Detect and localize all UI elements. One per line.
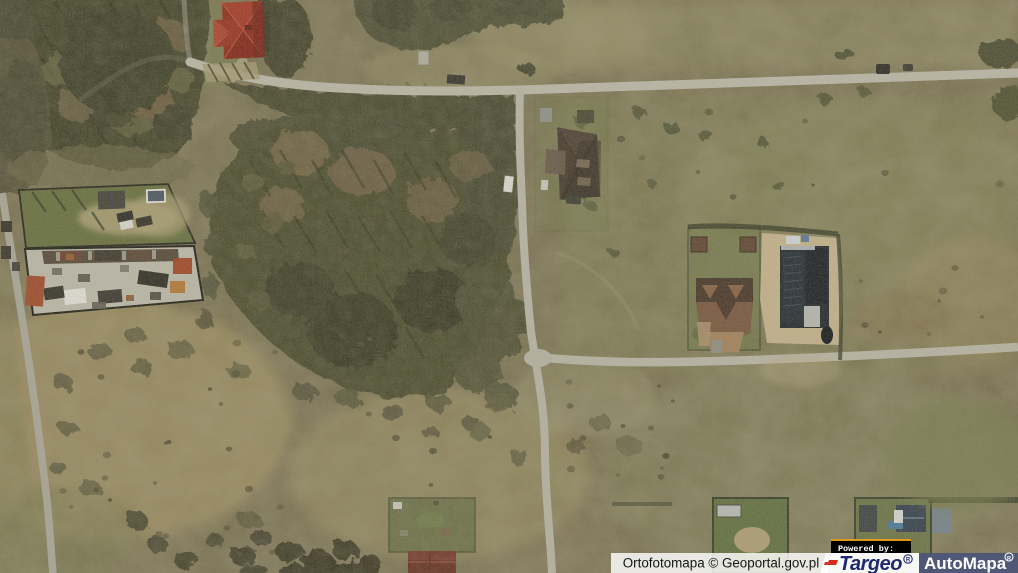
svg-text:Targeo: Targeo bbox=[839, 553, 902, 573]
svg-text:R: R bbox=[1007, 556, 1011, 562]
svg-text:AutoMapa: AutoMapa bbox=[924, 554, 1007, 573]
svg-text:R: R bbox=[906, 558, 911, 564]
svg-text:Ortofotomapa © Geoportal.gov.p: Ortofotomapa © Geoportal.gov.pl bbox=[623, 556, 819, 571]
